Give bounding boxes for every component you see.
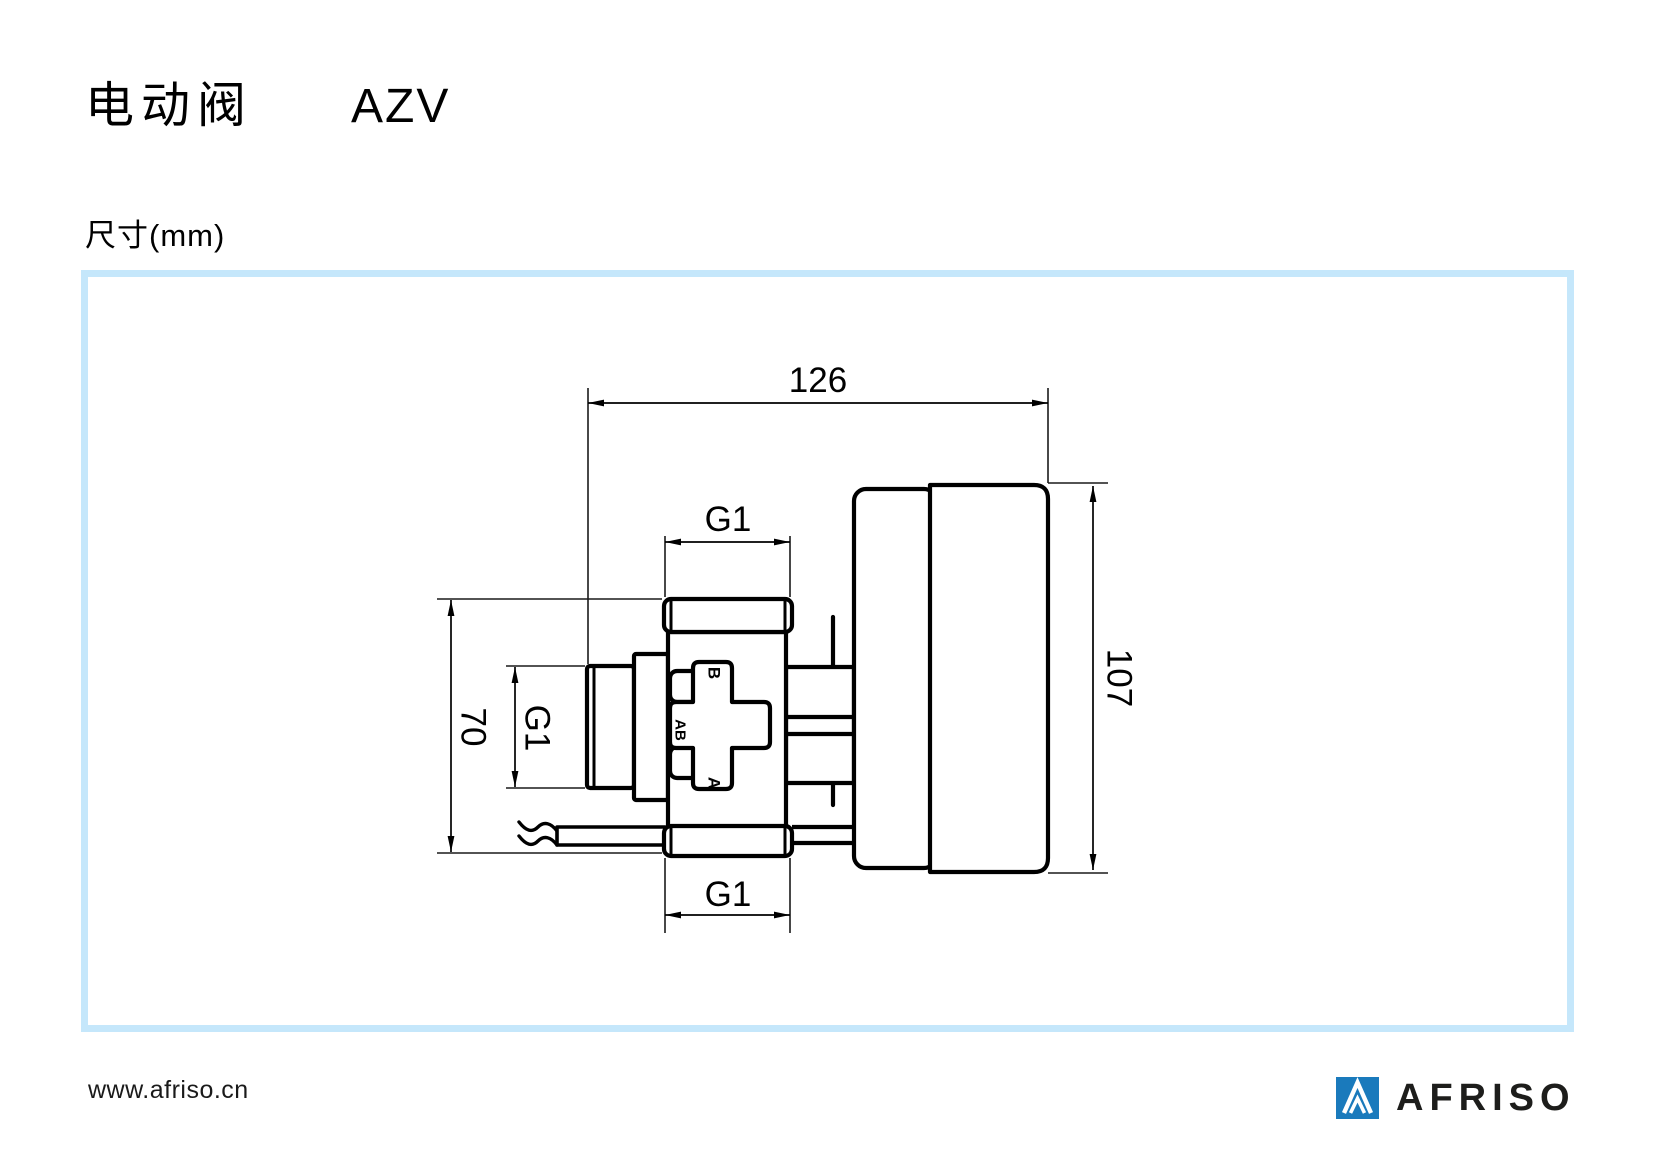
bottom-union-nut	[664, 826, 792, 856]
bottom-pipe	[792, 827, 856, 843]
actuator-cap	[854, 489, 936, 868]
flange-plate	[634, 654, 668, 800]
dim-label-126: 126	[789, 361, 847, 400]
port-letter-ab: AB	[672, 719, 689, 741]
afriso-logo-text: AFRISO	[1396, 1077, 1576, 1119]
actuator-body	[930, 485, 1048, 872]
technical-drawing: B AB A 126 G1 107 70 G1 G1	[0, 0, 1654, 1165]
cable	[519, 822, 665, 845]
dim-label-70: 70	[454, 708, 493, 747]
dim-label-g1-bottom: G1	[705, 875, 752, 914]
datasheet-page: 电动阀 AZV 尺寸(mm)	[0, 0, 1654, 1165]
top-union-nut	[664, 599, 792, 632]
valve-assembly	[519, 485, 1048, 872]
dim-label-g1-top: G1	[705, 500, 752, 539]
afriso-logo-icon	[1336, 1077, 1379, 1119]
afriso-logo: AFRISO	[1336, 1077, 1576, 1119]
left-threaded-port	[587, 666, 634, 788]
port-letter-a: A	[705, 777, 724, 789]
dim-label-107: 107	[1100, 649, 1139, 707]
website-url: www.afriso.cn	[88, 1076, 249, 1105]
dim-label-g1-left: G1	[518, 705, 557, 752]
right-port-block	[786, 667, 854, 783]
port-letter-b: B	[705, 667, 724, 679]
